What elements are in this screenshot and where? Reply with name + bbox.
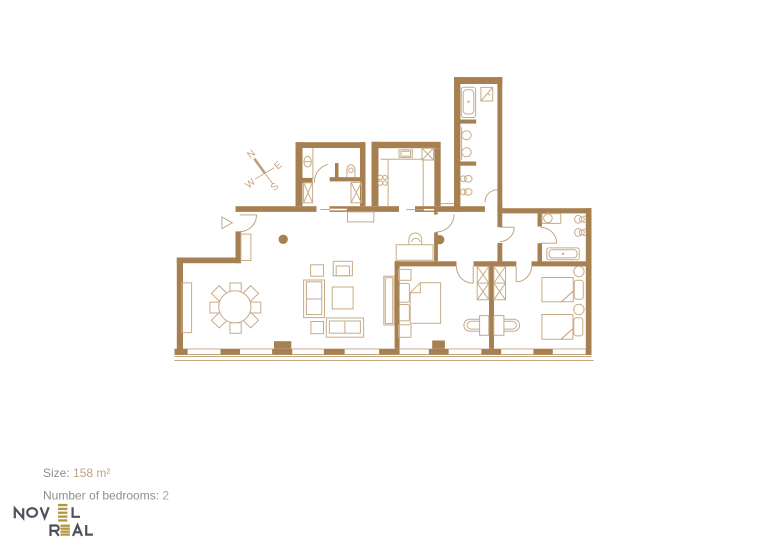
svg-text:S: S	[269, 181, 281, 194]
svg-text:E: E	[272, 159, 284, 172]
svg-text:Size: 158 m²: Size: 158 m²	[43, 466, 110, 480]
svg-text:Number of bedrooms: 2: Number of bedrooms: 2	[43, 489, 169, 503]
